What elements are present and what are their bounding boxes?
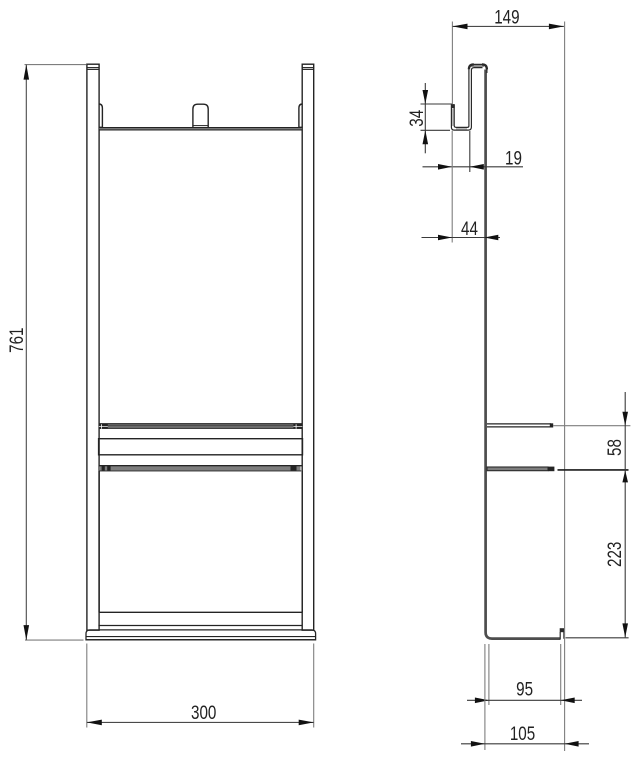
svg-text:105: 105 bbox=[510, 722, 535, 744]
svg-text:223: 223 bbox=[604, 542, 626, 567]
svg-text:58: 58 bbox=[604, 439, 626, 456]
svg-text:300: 300 bbox=[191, 701, 216, 723]
svg-text:149: 149 bbox=[494, 6, 519, 28]
svg-text:34: 34 bbox=[406, 109, 428, 126]
svg-text:761: 761 bbox=[5, 328, 27, 353]
svg-text:95: 95 bbox=[516, 678, 533, 700]
svg-text:44: 44 bbox=[461, 217, 478, 239]
svg-text:19: 19 bbox=[505, 147, 522, 169]
